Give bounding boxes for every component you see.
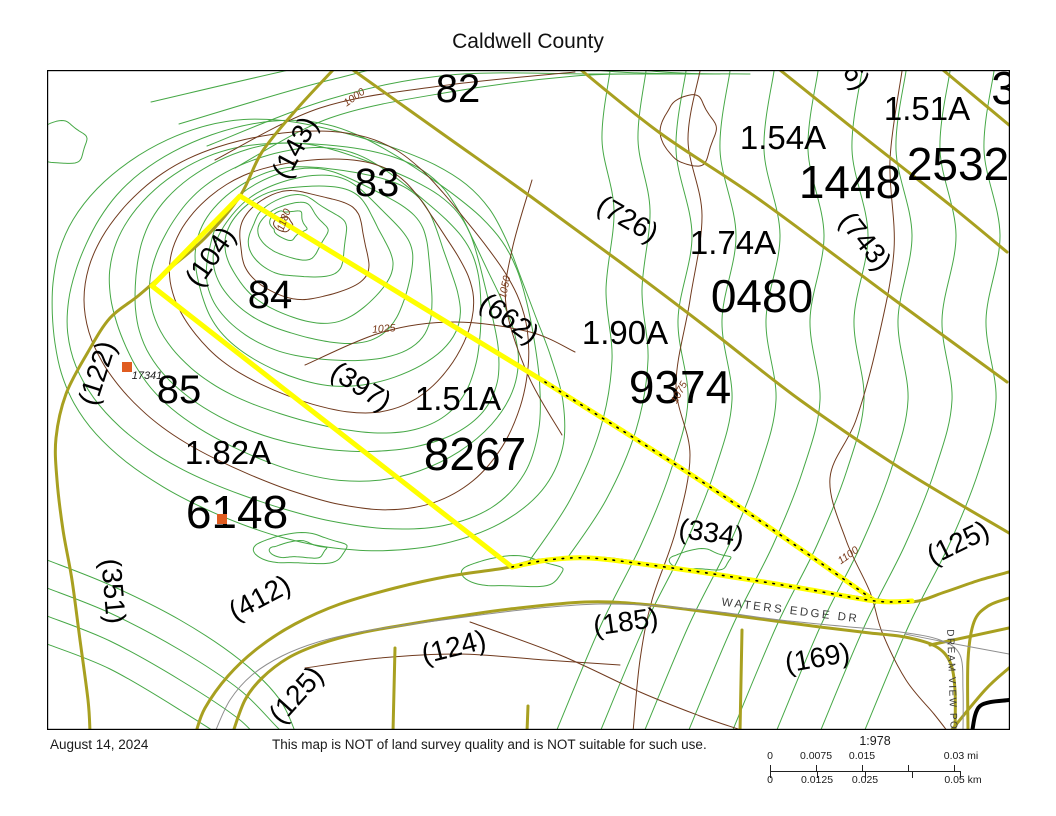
contour-elevation-label: 1100 [836, 544, 862, 567]
map-svg: 8283848532532144804809374826761481.51A1.… [47, 70, 1010, 730]
scale-bar: 1:978 0 0.0075 0.015 0.03 mi 0 0.0125 0.… [762, 734, 1022, 796]
scale-mi-tick: 0.03 mi [944, 750, 978, 762]
page-title: Caldwell County [0, 30, 1056, 54]
parcel-number-label: 6148 [186, 486, 288, 538]
acreage-label: 1.74A [690, 224, 776, 261]
scale-ratio: 1:978 [859, 734, 890, 748]
parcel-number-label: 83 [355, 161, 400, 205]
acreage-label: 1.54A [740, 119, 826, 156]
dimension-label: 6) [837, 70, 877, 96]
dimension-label: (122) [72, 337, 122, 409]
map-document: { "title": "Caldwell County", "footer": … [0, 0, 1056, 816]
parcel-number-label: 8267 [424, 428, 526, 480]
scale-mi-tick: 0.0075 [800, 750, 832, 762]
parcel-number-label: 0480 [711, 270, 813, 322]
contour-elevation-label: 1050 [497, 275, 514, 300]
scale-km-tick: 0.025 [852, 774, 878, 786]
parcel-number-label: 1448 [799, 156, 901, 208]
dimension-label: (169) [782, 637, 852, 679]
parcel-number-label: 2532 [907, 138, 1009, 190]
road-name-label: DREAM VIEW POI [944, 629, 959, 730]
dimension-label: (743) [833, 206, 898, 277]
dimension-label: (104) [179, 221, 242, 292]
parcel-number-label: 84 [248, 273, 293, 317]
site-marker [122, 362, 132, 372]
contour-elevation-label: 1000 [341, 86, 367, 109]
site-address-label: 17341 [132, 370, 163, 382]
acreage-label: 1.51A [884, 90, 970, 127]
scale-km-tick: 0.05 km [944, 774, 981, 786]
dimension-label: (125) [922, 514, 994, 571]
parcel-number-label: 3 [991, 70, 1010, 114]
dimension-label: (397) [325, 355, 397, 417]
acreage-label: 1.51A [415, 380, 501, 417]
acreage-label: 1.90A [582, 314, 668, 351]
map-layers: 8283848532532144804809374826761481.51A1.… [47, 70, 1010, 730]
scale-km-tick: 0 [767, 774, 773, 786]
scale-mi-tick: 0 [767, 750, 773, 762]
dimension-label: (124) [418, 624, 489, 670]
contour-elevation-label: 1025 [372, 322, 396, 336]
map-disclaimer: This map is NOT of land survey quality a… [272, 737, 707, 752]
map-canvas: 8283848532532144804809374826761481.51A1.… [47, 70, 1010, 730]
scale-km-tick: 0.0125 [801, 774, 833, 786]
acreage-label: 1.82A [185, 434, 271, 471]
scale-mi-tick: 0.015 [849, 750, 875, 762]
dimension-label: (351) [95, 557, 132, 625]
dimension-label: (334) [677, 513, 746, 553]
dimension-label: (726) [592, 189, 664, 249]
parcel-number-label: 82 [436, 70, 481, 111]
site-marker [217, 514, 227, 524]
map-date: August 14, 2024 [50, 737, 148, 752]
dimension-label: (185) [591, 602, 660, 642]
dimension-label: (412) [223, 569, 295, 627]
parcel-number-label: 85 [157, 368, 202, 412]
